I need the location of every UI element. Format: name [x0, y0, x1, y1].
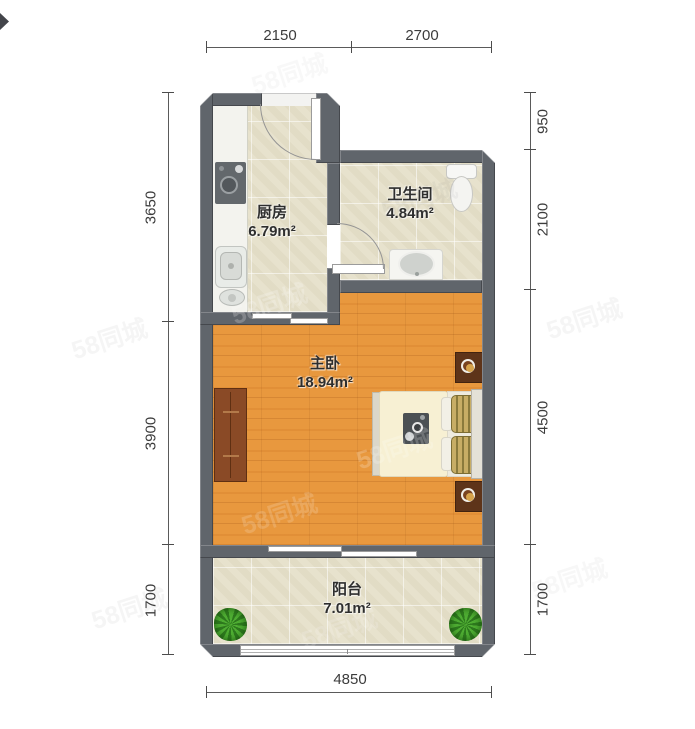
- kitchen-sliding-door-panel: [290, 318, 328, 324]
- dim-left-1: 3650: [143, 178, 160, 238]
- tray-item: [420, 415, 425, 420]
- dim-left-3: 1700: [143, 571, 160, 631]
- kitchen-label: 厨房 6.79m²: [222, 203, 322, 241]
- nightstand-lamp: [461, 488, 475, 502]
- floor-plan: 厨房 6.79m² 卫生间 4.84m² 主卧 18.94m² 阳台 7.01m…: [0, 0, 695, 729]
- north-arrow-icon: [0, 13, 9, 30]
- stove-knob: [219, 166, 224, 171]
- tray-cup: [405, 432, 414, 441]
- dim-tick: [162, 654, 174, 655]
- dim-line-left: [168, 93, 169, 655]
- dim-right-1: 950: [535, 92, 552, 152]
- bathroom-name: 卫生间: [387, 185, 432, 204]
- balcony-area: 7.01m²: [323, 599, 371, 618]
- wall-bathroom-top: [340, 150, 495, 163]
- wall-bathroom-bottom: [340, 280, 482, 293]
- wall-left: [200, 93, 213, 657]
- dim-bottom-1: 4850: [314, 671, 386, 688]
- stove-burner-large: [220, 176, 238, 194]
- balcony-window: [240, 645, 455, 656]
- balcony-sliding-door-panel: [268, 546, 342, 552]
- dim-line-top: [207, 47, 492, 48]
- dim-tick: [491, 41, 492, 53]
- dim-line-bottom: [207, 692, 492, 693]
- watermark: 58同城: [541, 289, 626, 347]
- wardrobe-handle: [223, 455, 239, 457]
- dim-right-3: 4500: [535, 388, 552, 448]
- wall-right: [482, 150, 495, 657]
- kitchen-sliding-door-panel: [252, 313, 292, 319]
- dim-right-4: 1700: [535, 570, 552, 630]
- watermark: 58同城: [66, 309, 151, 367]
- wall-kitchen-bathroom-upper: [327, 163, 340, 225]
- dim-tick: [351, 41, 352, 53]
- dim-tick: [524, 544, 536, 545]
- plant-right: [449, 608, 482, 641]
- balcony-name: 阳台: [332, 580, 362, 599]
- bedroom-name: 主卧: [310, 354, 340, 373]
- bed-tray: [403, 413, 429, 444]
- stove-burner-small: [235, 165, 243, 173]
- kettle: [219, 289, 245, 306]
- tray-plate: [412, 422, 423, 433]
- dim-tick: [162, 92, 174, 93]
- balcony-sliding-door-panel: [341, 551, 417, 557]
- plant-left: [214, 608, 247, 641]
- stove: [215, 162, 246, 204]
- corner-chamfer: [482, 644, 495, 657]
- dim-left-2: 3900: [143, 404, 160, 464]
- wardrobe-handle: [223, 411, 239, 413]
- lamp-glow: [466, 493, 474, 501]
- lamp-glow: [466, 364, 474, 372]
- corner-chamfer: [200, 644, 213, 657]
- kitchen-area: 6.79m²: [248, 222, 296, 241]
- dim-tick: [524, 654, 536, 655]
- kettle-lid: [228, 294, 236, 302]
- corner-chamfer: [200, 93, 213, 106]
- dim-tick: [162, 321, 174, 322]
- bathroom-label: 卫生间 4.84m²: [360, 185, 460, 223]
- bathroom-area: 4.84m²: [386, 204, 434, 223]
- basin-faucet: [415, 272, 419, 276]
- window-center-tick: [347, 649, 348, 654]
- sink-drain: [228, 263, 234, 269]
- nightstand-lamp: [461, 359, 475, 373]
- nightstand-bottom: [455, 481, 483, 512]
- bedroom-area: 18.94m²: [297, 373, 353, 392]
- dim-top-2: 2700: [386, 27, 458, 44]
- corner-chamfer: [482, 150, 495, 163]
- wardrobe-divider: [230, 392, 231, 478]
- dim-line-right: [530, 93, 531, 655]
- dim-tick: [491, 686, 492, 698]
- kitchen-sink: [215, 246, 247, 288]
- dim-tick: [206, 686, 207, 698]
- dim-tick: [206, 41, 207, 53]
- dim-tick: [162, 544, 174, 545]
- bathroom-basin: [389, 249, 443, 280]
- dim-right-2: 2100: [535, 190, 552, 250]
- dim-tick: [524, 289, 536, 290]
- kitchen-name: 厨房: [257, 203, 287, 222]
- bed: [372, 389, 483, 479]
- wardrobe: [214, 388, 247, 482]
- balcony-label: 阳台 7.01m²: [297, 580, 397, 618]
- nightstand-top: [455, 352, 483, 383]
- bedroom-label: 主卧 18.94m²: [275, 354, 375, 392]
- dim-top-1: 2150: [244, 27, 316, 44]
- corner-chamfer: [327, 93, 340, 106]
